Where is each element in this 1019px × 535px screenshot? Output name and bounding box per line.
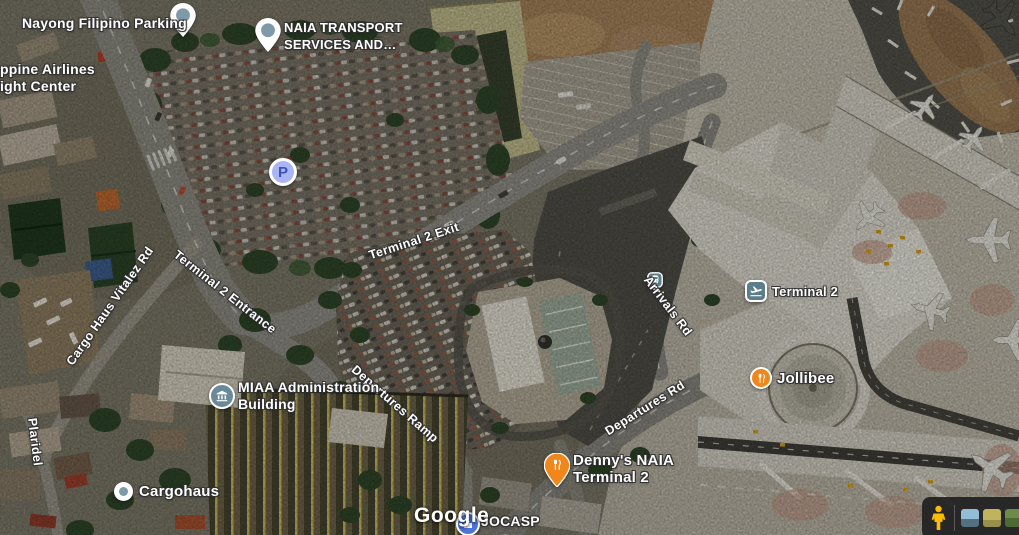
parking-icon[interactable]: P [269,158,297,186]
poi-label-line: ppine Airlines [0,61,95,78]
poi-label-dennys[interactable]: Denny's NAIA Terminal 2 [573,452,674,486]
airport-icon[interactable] [745,280,767,302]
street-view-thumbnail[interactable] [1005,509,1019,527]
place-dot-icon[interactable] [114,482,133,501]
google-logo: Google [414,504,489,528]
poi-label-naia-transport[interactable]: NAIA TRANSPORT SERVICES AND… [284,19,403,53]
map-canvas[interactable]: Nayong Filipino Parking NAIA TRANSPORT S… [0,0,1019,535]
street-view-thumbnail[interactable] [983,509,1001,527]
poi-label-miaa-administration[interactable]: MIAA Administration Building [238,379,379,413]
poi-label-cargohaus[interactable]: Cargohaus [139,483,219,500]
pegman-icon[interactable] [930,505,947,532]
divider [954,505,955,531]
street-view-thumbnail[interactable] [961,509,979,527]
poi-label-jollibee[interactable]: Jollibee [777,370,834,387]
poi-label-terminal-2[interactable]: Terminal 2 [772,284,838,299]
poi-label-line: Denny's NAIA [573,452,674,469]
poi-label-line: SERVICES AND… [284,36,403,53]
street-view-photos-bar[interactable] [922,497,1019,535]
poi-label-line: MIAA Administration [238,379,379,396]
restaurant-pin-icon[interactable] [544,453,570,492]
poi-label-line: ight Center [0,78,95,95]
poi-label-line: Building [238,396,379,413]
poi-label-line: Terminal 2 [573,469,674,486]
poi-label-line: NAIA TRANSPORT [284,19,403,36]
place-pin-icon[interactable] [255,18,281,57]
poi-label-nayong-filipino-parking[interactable]: Nayong Filipino Parking [22,15,187,31]
poi-label-jocasp[interactable]: JOCASP [481,513,540,529]
satellite-imagery [0,0,1019,535]
poi-label-philippine-airlines[interactable]: ppine Airlines ight Center [0,61,95,95]
restaurant-icon[interactable] [750,367,772,389]
parking-letter: P [278,164,288,181]
government-building-icon[interactable] [209,383,235,409]
